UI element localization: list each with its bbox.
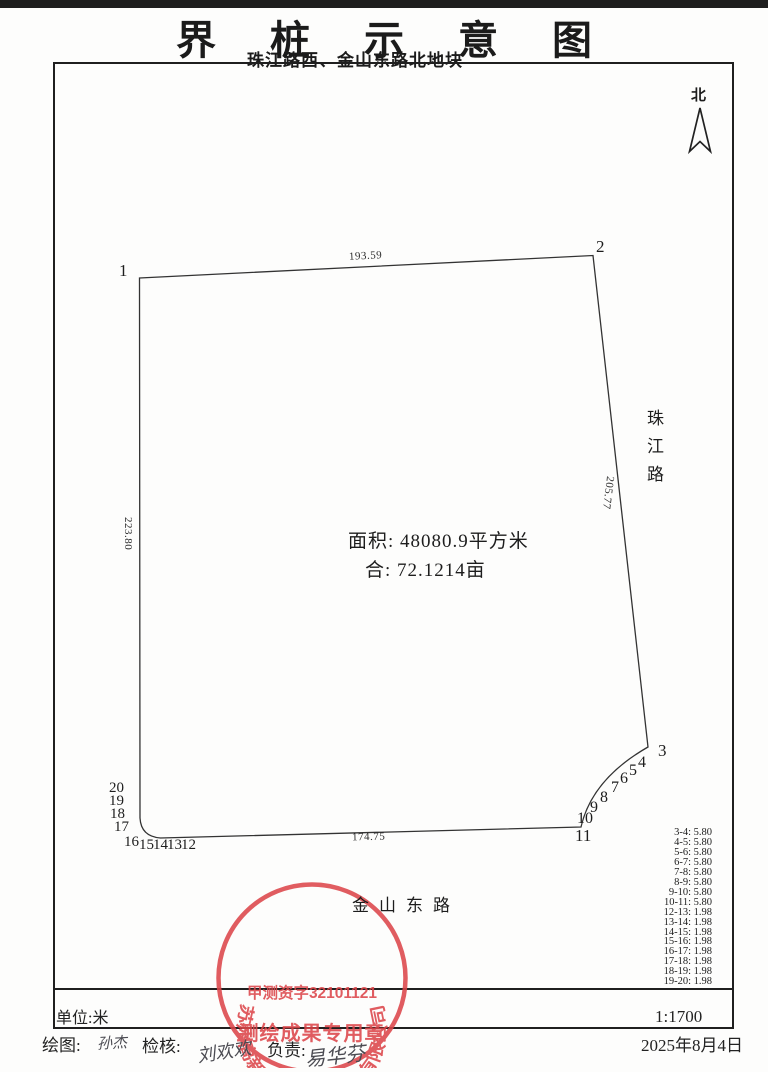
vertex-label-12: 12 xyxy=(181,837,196,854)
north-arrow-icon xyxy=(690,108,711,152)
vertex-label-8: 8 xyxy=(600,789,608,807)
footer-charge-signature: 易华芬 xyxy=(304,1037,367,1072)
vertex-label-11: 11 xyxy=(575,826,591,846)
area-line-sqm: 面积: 48080.9平方米 xyxy=(348,527,529,556)
vertex-label-5: 5 xyxy=(629,762,637,780)
vertex-label-13: 13 xyxy=(167,837,182,854)
area-line-mu: 合: 72.1214亩 xyxy=(348,556,529,585)
vertex-label-4: 4 xyxy=(638,754,646,772)
vertex-label-6: 6 xyxy=(620,770,628,788)
distance-row: 19-20: 1.98 xyxy=(616,977,712,987)
footer-check-label: 检核: xyxy=(142,1032,181,1057)
north-label: 北 xyxy=(691,84,706,105)
vertex-label-7: 7 xyxy=(611,779,619,797)
vertex-label-2: 2 xyxy=(596,237,605,257)
footer-unit: 单位:米 xyxy=(56,1004,108,1028)
vertex-label-3: 3 xyxy=(658,741,667,761)
footer-scale: 1:1700 xyxy=(655,1007,702,1027)
distance-list: 3-4: 5.80 4-5: 5.80 5-6: 5.80 6-7: 5.80 … xyxy=(616,828,712,987)
footer-drawn-label: 绘图: xyxy=(42,1031,81,1056)
road-label-zhujiang: 珠江路 xyxy=(641,409,666,493)
footer-drawn-signature: 孙杰 xyxy=(96,1031,127,1054)
edge-length-top: 193.59 xyxy=(349,249,383,263)
area-annotation: 面积: 48080.9平方米 合: 72.1214亩 xyxy=(348,527,529,585)
edge-length-bottom: 174.75 xyxy=(352,831,386,844)
footer-date: 2025年8月4日 xyxy=(641,1031,743,1056)
road-label-jinshandong: 金山东路 xyxy=(352,891,460,916)
vertex-label-20: 20 xyxy=(109,780,124,797)
edge-length-left: 223.80 xyxy=(122,517,134,550)
vertex-label-1: 1 xyxy=(119,261,128,281)
vertex-label-15: 15 xyxy=(139,837,154,854)
vertex-label-14: 14 xyxy=(153,837,168,854)
stamp-license: 甲测资字32101121 xyxy=(247,983,377,1002)
footer-charge-label: 负责: xyxy=(267,1036,306,1061)
vertex-label-16: 16 xyxy=(124,834,139,851)
